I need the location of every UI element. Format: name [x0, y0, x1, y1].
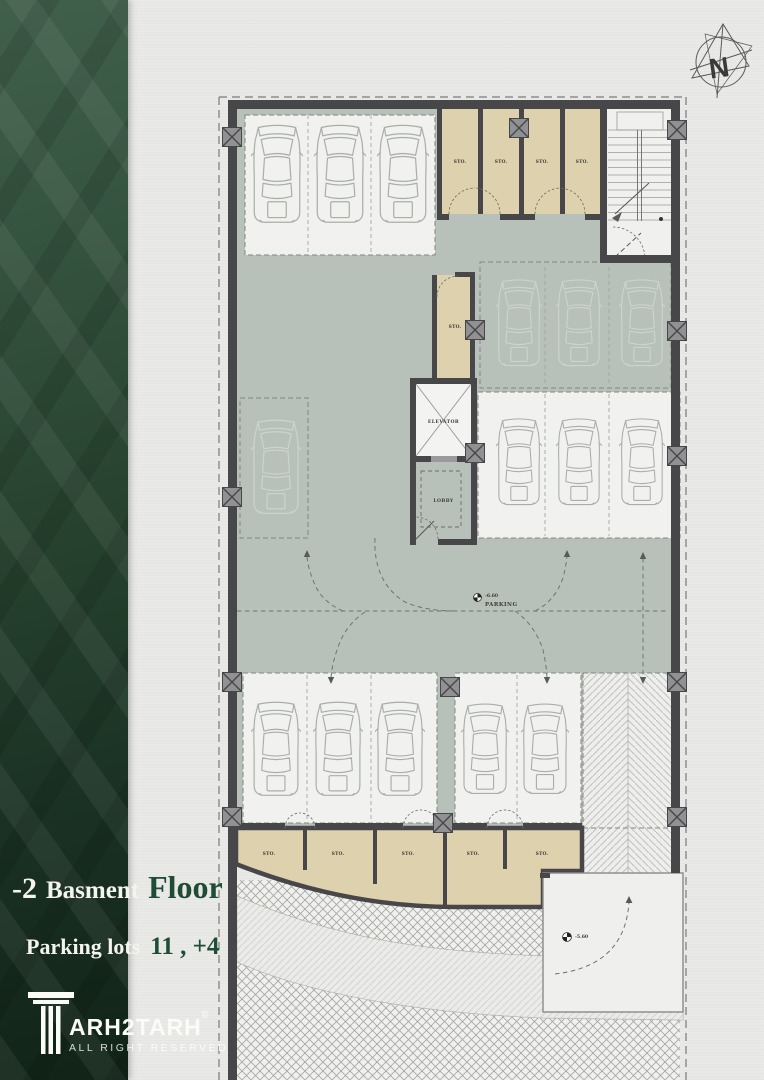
ramp-room: -5.60 — [540, 873, 683, 1012]
parking-stats: Parking lots11 , +4 — [26, 933, 219, 961]
bay-mid-right — [478, 392, 680, 538]
storage-label: STO. — [467, 852, 480, 857]
brand-name: ARH2TARH© — [69, 1010, 228, 1039]
ramp-strip — [583, 673, 671, 873]
lobby-label: LOBBY — [433, 498, 454, 504]
floor-number: -2 — [12, 872, 37, 905]
storage-label: STO. — [449, 325, 462, 330]
pillar-icon — [28, 992, 74, 1054]
compass-n-label: N — [707, 51, 731, 85]
north-compass-icon: N — [682, 20, 760, 100]
elevator-label: ELEVATOR — [428, 419, 459, 425]
copyright-mark: © — [202, 1009, 210, 1019]
level-marker-icon — [474, 594, 482, 602]
parking-label: PARKING — [485, 602, 518, 608]
storage-label: STO. — [576, 160, 589, 165]
bay-bottom-mid — [455, 673, 581, 823]
brand-panel — [0, 0, 128, 1080]
leaf-texture-2 — [0, 0, 128, 1080]
storage-label: STO. — [402, 852, 415, 857]
storage-label: STO. — [332, 852, 345, 857]
storage-label: STO. — [536, 852, 549, 857]
floor-title: -2BasmentFloor — [12, 869, 223, 906]
parking-level-label: -6.60 — [485, 593, 498, 599]
floor-word2: Floor — [148, 869, 223, 905]
ramp-level-label: -5.60 — [575, 934, 588, 940]
level-marker-icon — [563, 933, 572, 942]
storage-label: STO. — [454, 160, 467, 165]
logo: ARH2TARH© ALL RIGHT RESERVED — [28, 992, 228, 1054]
staircase — [607, 108, 671, 259]
parking-stats-value: 11 , +4 — [150, 933, 219, 960]
page-background: -2BasmentFloor Parking lots11 , +4 ARH2T… — [0, 0, 764, 1080]
storage-label: STO. — [536, 160, 549, 165]
parking-stats-label: Parking lots — [26, 934, 140, 959]
leaf-texture — [0, 0, 128, 1080]
storage-label: STO. — [495, 160, 508, 165]
floor-plan: -5.60 — [215, 90, 690, 1080]
floor-word: Basment — [46, 877, 139, 904]
brand-tagline: ALL RIGHT RESERVED — [69, 1042, 228, 1054]
bay-bottom-left — [243, 673, 437, 823]
storage-label: STO. — [263, 852, 276, 857]
